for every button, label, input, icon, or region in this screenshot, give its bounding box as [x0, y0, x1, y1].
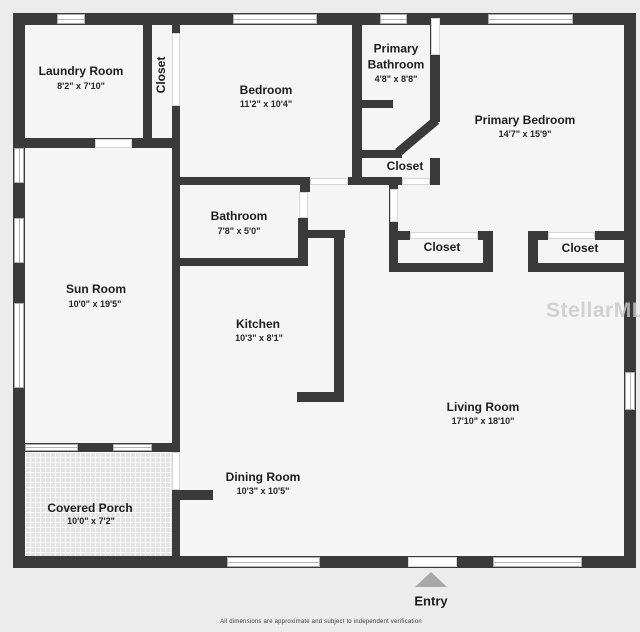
wall	[352, 13, 362, 185]
wall	[172, 106, 180, 452]
room-dims-laundry: 8'2" x 7'10"	[57, 81, 105, 91]
room-name-primary-bedroom: Primary Bedroom	[475, 113, 576, 127]
wall	[595, 231, 624, 240]
room-name-dining-room: Dining Room	[226, 470, 301, 484]
wall	[389, 231, 410, 240]
room-name-bedroom: Bedroom	[240, 83, 293, 97]
entry-label: Entry	[414, 594, 447, 609]
door-opening	[310, 178, 348, 185]
room-dims-bedroom: 11'2" x 10'4"	[240, 99, 292, 109]
wall	[334, 230, 344, 402]
room-dims-dining-room: 10'3" x 10'5"	[237, 486, 290, 496]
room-dims-primary-bedroom: 14'7" x 15'9"	[499, 129, 552, 139]
door-opening	[299, 192, 308, 218]
wall	[528, 231, 548, 240]
door-opening	[172, 33, 180, 106]
window	[625, 372, 635, 410]
room-name-primary-bath-closet: Closet	[387, 159, 424, 173]
wall	[143, 25, 152, 138]
room-dims-primary-bathroom: 4'8" x 8'8"	[375, 74, 418, 84]
room-dims-kitchen: 10'3" x 8'1"	[235, 333, 283, 343]
floor-plan: Laundry Room 8'2" x 7'10" Closet Bedroom…	[0, 0, 640, 632]
wall	[172, 258, 308, 266]
door-opening	[548, 232, 595, 239]
wall	[13, 13, 25, 568]
window	[233, 14, 317, 24]
wall	[297, 392, 344, 402]
wall	[172, 177, 310, 185]
window	[14, 218, 24, 263]
room-dims-living-room: 17'10" x 18'10"	[452, 416, 515, 426]
room-name-covered-porch: Covered Porch	[47, 501, 132, 515]
wall	[180, 490, 213, 500]
room-name-closet-right: Closet	[562, 241, 599, 255]
door-opening	[390, 189, 398, 222]
door-opening	[172, 452, 180, 490]
entry-arrow-icon	[415, 572, 447, 587]
room-name-living-room: Living Room	[447, 400, 520, 414]
door-opening	[95, 139, 132, 148]
room-name-closet-left: Closet	[424, 240, 461, 254]
room-name-primary-bathroom: Primary Bathroom	[351, 41, 441, 72]
watermark: StellarMLS	[546, 299, 640, 323]
wall	[389, 263, 493, 272]
room-name-laundry: Laundry Room	[39, 64, 124, 78]
wall	[172, 490, 180, 556]
room-name-kitchen: Kitchen	[236, 317, 280, 331]
room-name-bathroom: Bathroom	[211, 209, 268, 223]
window	[14, 303, 24, 388]
wall	[300, 177, 310, 192]
window	[493, 557, 582, 567]
room-name-sun-room: Sun Room	[66, 282, 126, 296]
window	[113, 444, 152, 451]
room-dims-sun-room: 10'0" x 19'5"	[69, 299, 122, 309]
window	[57, 14, 85, 24]
window	[25, 444, 78, 451]
window	[488, 14, 573, 24]
room-dims-covered-porch: 10'0" x 7'2"	[67, 516, 115, 526]
room-dims-bathroom: 7'8" x 5'0"	[218, 226, 261, 236]
window	[380, 14, 407, 24]
entry-door-opening	[408, 557, 457, 567]
door-opening	[402, 178, 430, 185]
disclaimer-text: All dimensions are approximate and subje…	[220, 619, 422, 625]
wall	[528, 263, 636, 272]
window	[14, 148, 24, 183]
wall	[624, 13, 636, 568]
window	[227, 557, 320, 567]
wall	[362, 150, 402, 158]
room-name-bedroom-closet: Closet	[154, 57, 168, 94]
door-opening	[410, 232, 478, 239]
wall	[362, 100, 393, 108]
wall	[430, 158, 440, 185]
